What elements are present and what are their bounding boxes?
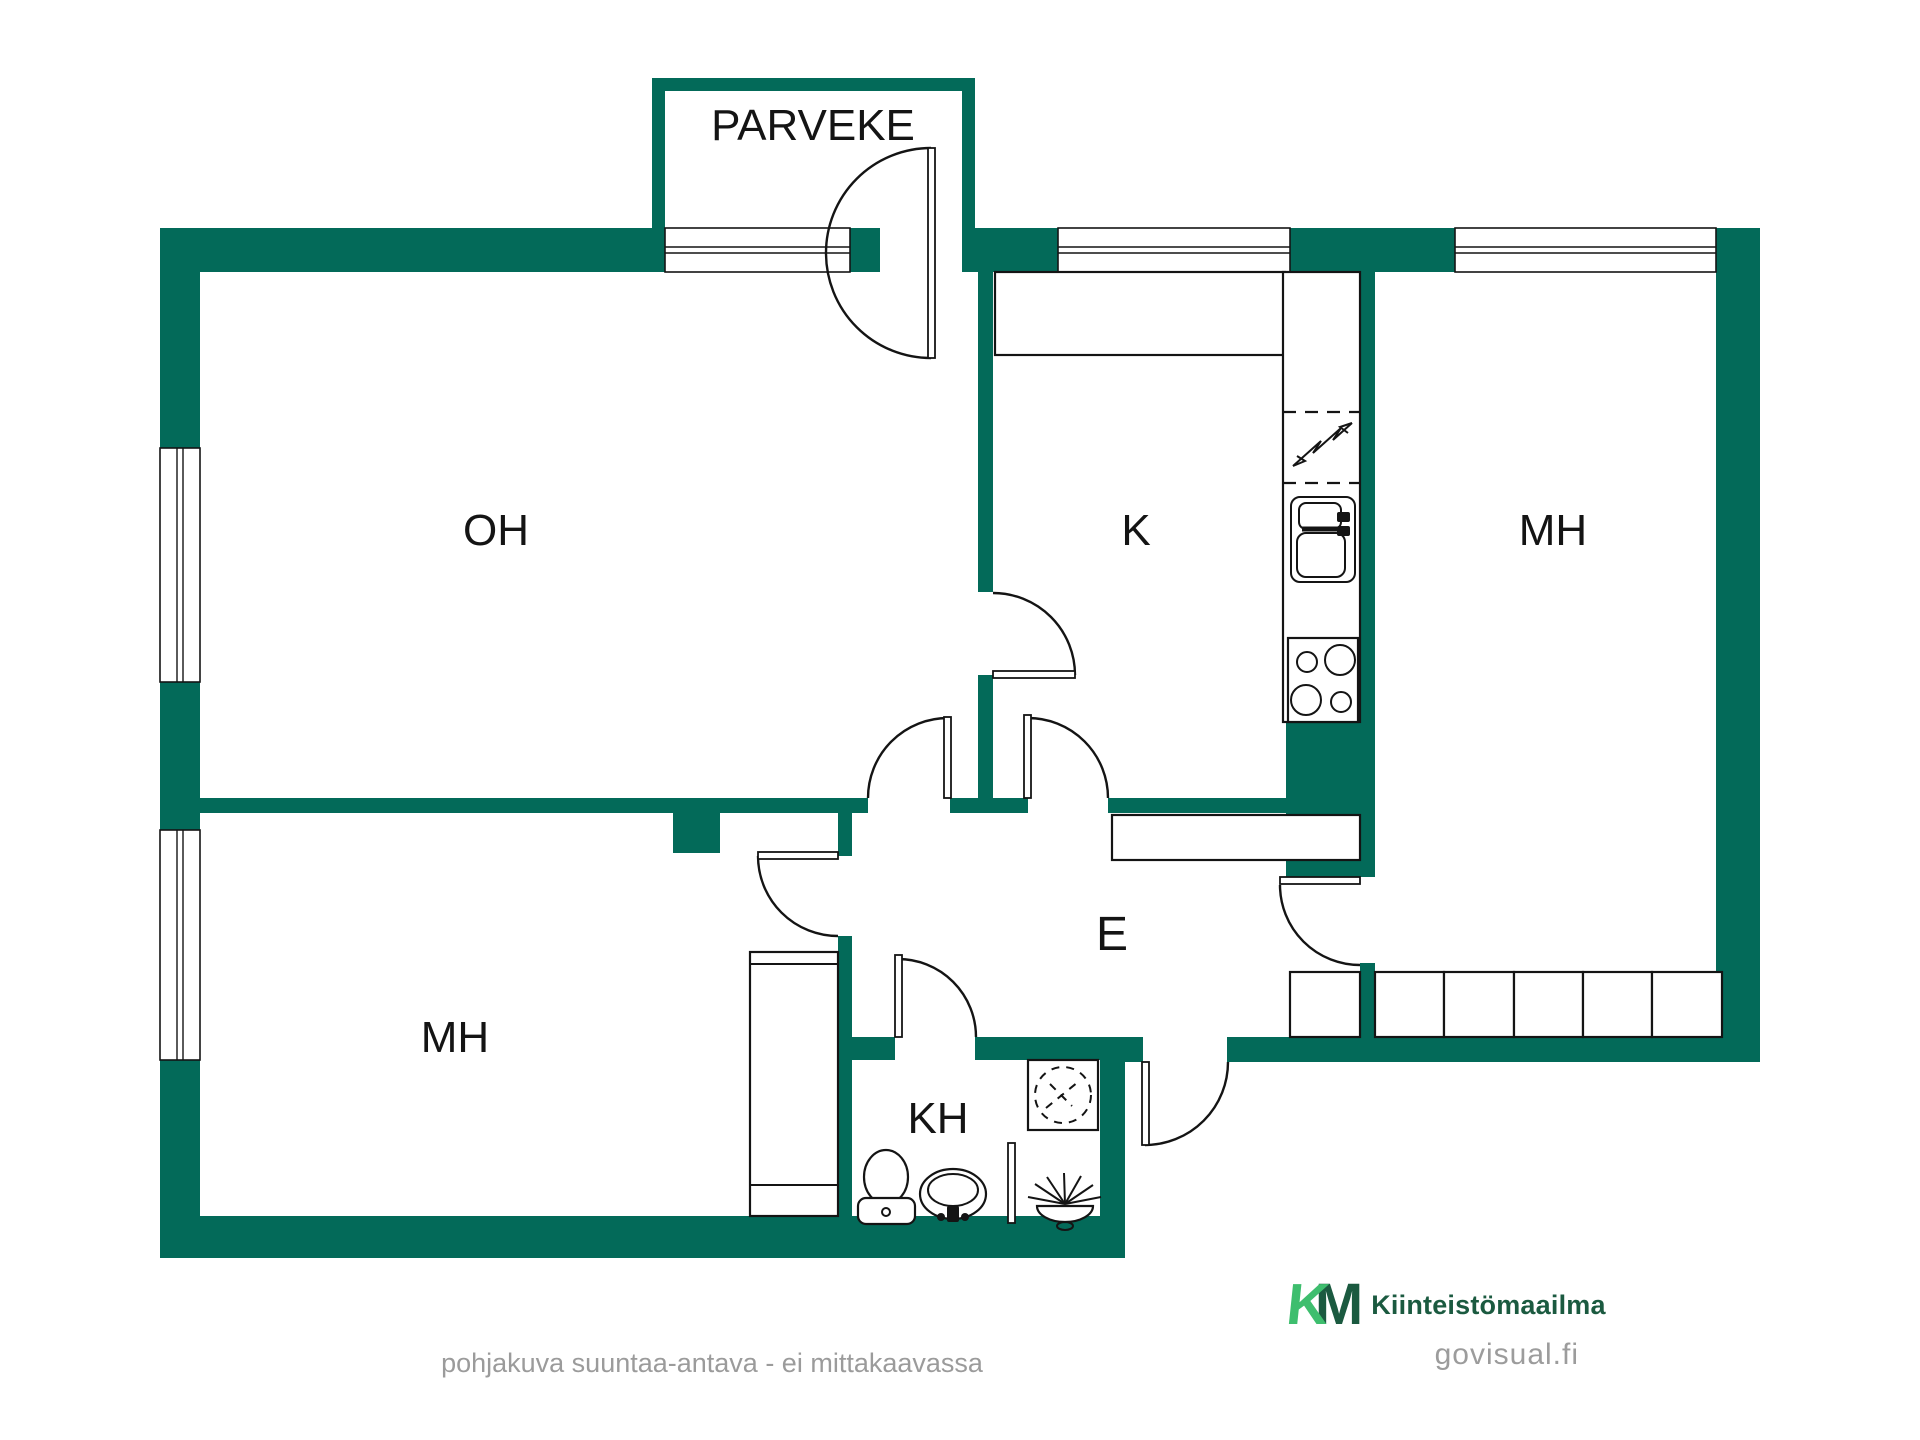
wall-hall-west-2 — [838, 936, 852, 1037]
label-bedroom-right: MH — [1519, 506, 1587, 555]
window-bedroom-right — [1455, 228, 1716, 272]
balcony-wall-left — [652, 78, 665, 228]
kitchen-hall-door — [1024, 715, 1108, 798]
floor-plan-drawing: PARVEKE OH K MH MH E KH pohjakuva suunta… — [0, 0, 1920, 1440]
wall-bedroom-right-west — [1360, 963, 1375, 1060]
washing-machine-icon — [1028, 1060, 1098, 1130]
brand-name: Kiinteistömaailma — [1371, 1290, 1605, 1321]
kitchen-living-door — [993, 593, 1075, 678]
bedroom-right-door — [1280, 877, 1360, 965]
window-bedroom-left — [160, 830, 200, 1060]
wall-bathroom-east — [1100, 1037, 1125, 1216]
brand-logo-row: K M Kiinteistömaailma — [1287, 1276, 1579, 1334]
label-hall: E — [1096, 908, 1128, 961]
wall-hall-west-1 — [838, 812, 852, 856]
window-balcony — [665, 228, 850, 272]
label-balcony: PARVEKE — [711, 101, 915, 150]
bathroom-sink-icon — [920, 1169, 986, 1222]
bathroom-door — [895, 955, 976, 1037]
label-bedroom-left: MH — [421, 1013, 489, 1062]
brand-logo: K M Kiinteistömaailma govisual.fi — [1287, 1276, 1579, 1372]
balcony-wall-right — [962, 78, 975, 228]
wall-top-3 — [962, 228, 1058, 272]
wall-pillar — [673, 813, 720, 853]
kitchen-counter-north — [995, 272, 1285, 355]
kitchen-appliance-column — [1283, 272, 1360, 722]
entry-door — [1142, 1062, 1228, 1145]
wall-bathroom-north-2 — [975, 1037, 1100, 1060]
disclaimer-text: pohjakuva suuntaa-antava - ei mittakaava… — [441, 1348, 984, 1378]
wall-top-1 — [160, 228, 665, 272]
label-bathroom: KH — [907, 1094, 968, 1143]
wall-left-1 — [160, 228, 200, 448]
wall-left-2 — [160, 682, 200, 830]
windows — [160, 228, 1716, 1060]
wall-kitchen-west-2 — [978, 675, 993, 798]
stove-icon — [1288, 638, 1358, 722]
hall-cabinet — [1290, 972, 1360, 1037]
wall-kitchen-east — [1360, 272, 1375, 712]
label-living-room: OH — [463, 506, 529, 555]
wall-bottom-left-wing — [160, 1216, 1125, 1258]
wall-top-2 — [850, 228, 880, 272]
wall-oh-south-2 — [950, 798, 1028, 813]
wall-k-south — [1108, 798, 1286, 813]
bedroom-left-wardrobe — [750, 952, 838, 1216]
wall-south-entry-jamb — [1125, 1037, 1143, 1062]
wall-bathroom-west — [838, 1037, 852, 1216]
km-logo-k-icon: K — [1284, 1276, 1332, 1334]
balcony-wall-top — [652, 78, 975, 91]
wall-bathroom-north-1 — [852, 1037, 895, 1060]
wall-kitchen-west-1 — [978, 272, 993, 592]
bedroom-left-door — [758, 852, 838, 936]
wall-south-right-wing — [1227, 1037, 1716, 1062]
watermark-text: govisual.fi — [1287, 1338, 1579, 1372]
bedroom-right-closets — [1375, 972, 1722, 1037]
toilet-icon — [858, 1150, 915, 1224]
living-room-door — [868, 717, 951, 798]
window-kitchen — [1058, 228, 1290, 272]
shower-screen — [1008, 1143, 1015, 1223]
wall-right — [1716, 228, 1760, 1062]
wall-oh-south-1 — [200, 798, 868, 813]
window-living-room — [160, 448, 200, 682]
floor-plan: PARVEKE OH K MH MH E KH pohjakuva suunta… — [0, 0, 1920, 1440]
hall-closet — [1112, 815, 1360, 860]
label-kitchen: K — [1121, 506, 1150, 555]
wall-top-4 — [1290, 228, 1455, 272]
